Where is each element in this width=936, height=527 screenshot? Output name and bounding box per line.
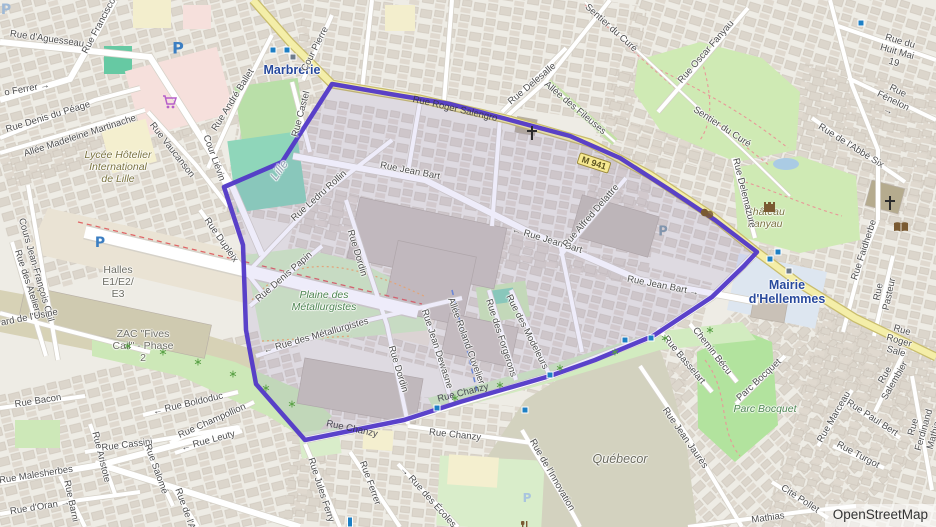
attribution-link[interactable]: OpenStreetMap [825, 504, 936, 527]
attribution-text: OpenStreetMap [833, 507, 928, 522]
map-base-layer [0, 0, 936, 527]
map-canvas[interactable]: MarbrerieMairie d'HellemmesLycée Hôtelie… [0, 0, 936, 527]
